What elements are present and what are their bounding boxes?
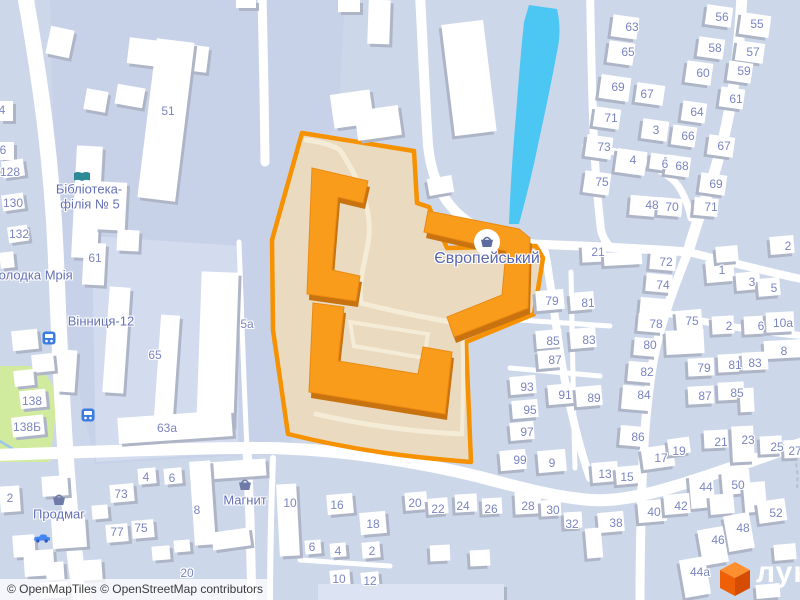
house-number: 82 [640, 365, 653, 379]
house-number: 73 [597, 140, 610, 154]
house-number: 21 [714, 435, 727, 449]
house-number: 50 [731, 478, 744, 492]
house-number: 81 [728, 358, 741, 372]
library-label-line1: Бібліотека- [56, 182, 122, 197]
house-number: 83 [748, 356, 761, 370]
house-number: 89 [587, 391, 600, 405]
house-number: 64 [690, 105, 703, 119]
house-number: 81 [581, 296, 594, 310]
house-number: 77 [110, 525, 123, 539]
house-number: 21 [591, 245, 604, 259]
house-number: 57 [746, 45, 759, 59]
house-number: 65 [621, 45, 634, 59]
house-number: 4 [0, 103, 5, 117]
magnit-label: Магнит [223, 493, 266, 508]
house-number: 73 [114, 487, 127, 501]
house-number: 15 [620, 470, 633, 484]
house-number: 10а [773, 316, 793, 330]
house-number: 68 [675, 159, 688, 173]
house-number: 28 [521, 499, 534, 513]
house-number: 2 [726, 319, 733, 333]
house-number: 69 [611, 80, 624, 94]
house-number: 3 [749, 275, 756, 289]
prodmag-label: Продмаг [33, 507, 85, 522]
house-number: 58 [708, 41, 721, 55]
house-number: 138 [22, 394, 42, 408]
house-number: 1 [719, 263, 726, 277]
house-number: 59 [737, 64, 750, 78]
house-number: 79 [697, 361, 710, 375]
house-number: 6 [758, 319, 765, 333]
house-number: 55 [750, 17, 763, 31]
house-number: 70 [665, 200, 678, 214]
house-number: 16 [330, 498, 343, 512]
house-number: 69 [709, 177, 722, 191]
house-number: 27 [788, 444, 800, 458]
house-number: 5а [240, 317, 253, 331]
house-number: 46 [711, 533, 724, 547]
house-number: 44 [699, 480, 712, 494]
house-number: 6 [0, 143, 6, 157]
house-number: 48 [645, 198, 658, 212]
house-number: 51 [161, 104, 174, 118]
house-number: 13 [598, 467, 611, 481]
house-number: 72 [659, 255, 672, 269]
house-number: 75 [685, 314, 698, 328]
house-number: 25 [770, 440, 783, 454]
house-number: 2 [785, 239, 792, 253]
house-number: 30 [546, 503, 559, 517]
library-label-line2: філія № 5 [60, 197, 120, 212]
house-number: 86 [631, 430, 644, 444]
house-number: 10 [332, 572, 345, 586]
house-number: 132 [9, 227, 29, 241]
house-number: 32 [565, 517, 578, 531]
house-number: 4 [143, 470, 150, 484]
house-number: 95 [523, 403, 536, 417]
solodka-mriya-label: Солодка Мрія [0, 268, 73, 283]
house-number: 67 [717, 139, 730, 153]
house-number: 38 [609, 516, 622, 530]
complex-name-label[interactable]: Європейський [434, 250, 540, 268]
house-number: 130 [3, 196, 23, 210]
house-number: 56 [715, 10, 728, 24]
house-number: 20 [180, 566, 193, 580]
house-number: 2 [369, 544, 376, 558]
house-number: 8 [194, 503, 201, 517]
house-number: 75 [595, 175, 608, 189]
house-number: 10 [283, 496, 296, 510]
house-number: 4 [335, 544, 342, 558]
house-number: 24 [456, 499, 469, 513]
house-number: 83 [582, 333, 595, 347]
labels-layer: 514612813013261655а63а138138Б27346777582… [0, 0, 800, 600]
house-number: 22 [431, 502, 444, 516]
house-number: 138Б [13, 420, 41, 434]
house-number: 91 [558, 388, 571, 402]
attribution-text: © OpenMapTiles © OpenStreetMap contribut… [7, 582, 263, 596]
house-number: 71 [704, 200, 717, 214]
house-number: 23 [741, 433, 754, 447]
house-number: 6 [169, 471, 176, 485]
lun-logo[interactable]: лун [700, 548, 800, 600]
vinnytsia-12-label: Вінниця-12 [68, 314, 134, 329]
lun-logo-text: лун [756, 556, 800, 590]
house-number: 80 [643, 338, 656, 352]
house-number: 93 [520, 380, 533, 394]
house-number: 79 [545, 294, 558, 308]
house-number: 87 [698, 389, 711, 403]
house-number: 9 [549, 456, 556, 470]
map-attribution[interactable]: © OpenMapTiles © OpenStreetMap contribut… [0, 579, 272, 600]
house-number: 71 [604, 111, 617, 125]
house-number: 60 [696, 66, 709, 80]
house-number: 2 [7, 491, 14, 505]
house-number: 85 [730, 386, 743, 400]
house-number: 84 [637, 388, 650, 402]
house-number: 4 [630, 153, 637, 167]
house-number: 99 [513, 453, 526, 467]
house-number: 5 [771, 281, 778, 295]
house-number: 78 [649, 317, 662, 331]
house-number: 61 [88, 251, 101, 265]
house-number: 63 [625, 20, 638, 34]
house-number: 66 [681, 129, 694, 143]
house-number: 65 [148, 348, 161, 362]
house-number: 67 [640, 87, 653, 101]
house-number: 75 [134, 521, 147, 535]
house-number: 74 [656, 278, 669, 292]
house-number: 40 [647, 505, 660, 519]
house-number: 42 [674, 499, 687, 513]
map-canvas[interactable]: 514612813013261655а63а138138Б27346777582… [0, 0, 800, 600]
house-number: 97 [520, 425, 533, 439]
house-number: 26 [484, 502, 497, 516]
house-number: 61 [729, 92, 742, 106]
house-number: 85 [546, 334, 559, 348]
house-number: 17 [654, 451, 667, 465]
house-number: 8 [781, 344, 788, 358]
house-number: 63а [157, 421, 177, 435]
house-number: 3 [653, 123, 660, 137]
house-number: 87 [548, 353, 561, 367]
house-number: 52 [769, 506, 782, 520]
house-number: 20 [408, 496, 421, 510]
house-number: 48 [736, 521, 749, 535]
house-number: 18 [366, 517, 379, 531]
house-number: 19 [672, 444, 685, 458]
house-number: 6 [662, 157, 669, 171]
house-number: 12 [363, 574, 376, 588]
house-number: 6 [309, 540, 316, 554]
house-number: 128 [0, 165, 20, 179]
